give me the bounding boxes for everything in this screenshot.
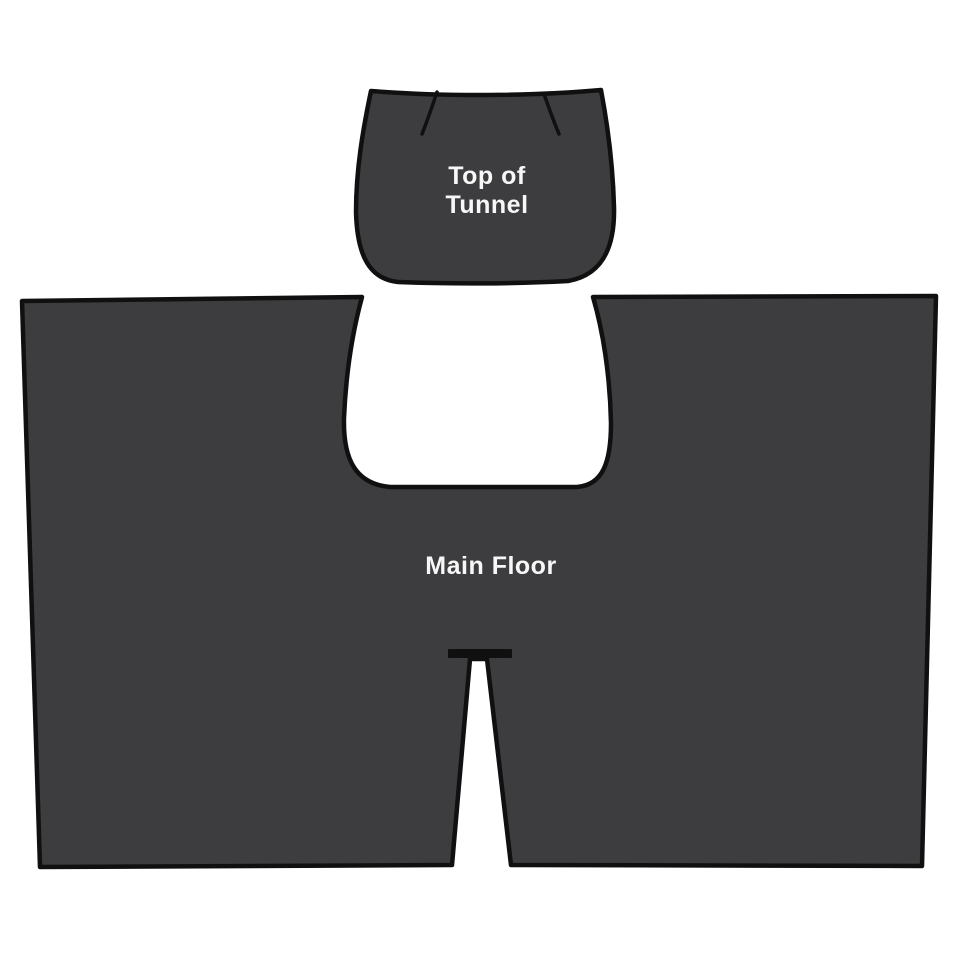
pattern-diagram-canvas: Top of Tunnel Main Floor xyxy=(0,0,960,960)
top-of-tunnel-label-line2: Tunnel xyxy=(445,191,528,219)
top-of-tunnel-label-line1: Top of xyxy=(448,162,526,190)
slit-top-bar xyxy=(448,649,512,658)
main-floor-shape xyxy=(22,296,936,867)
pattern-diagram: Top of Tunnel Main Floor xyxy=(0,0,960,960)
main-floor-label: Main Floor xyxy=(425,552,556,580)
